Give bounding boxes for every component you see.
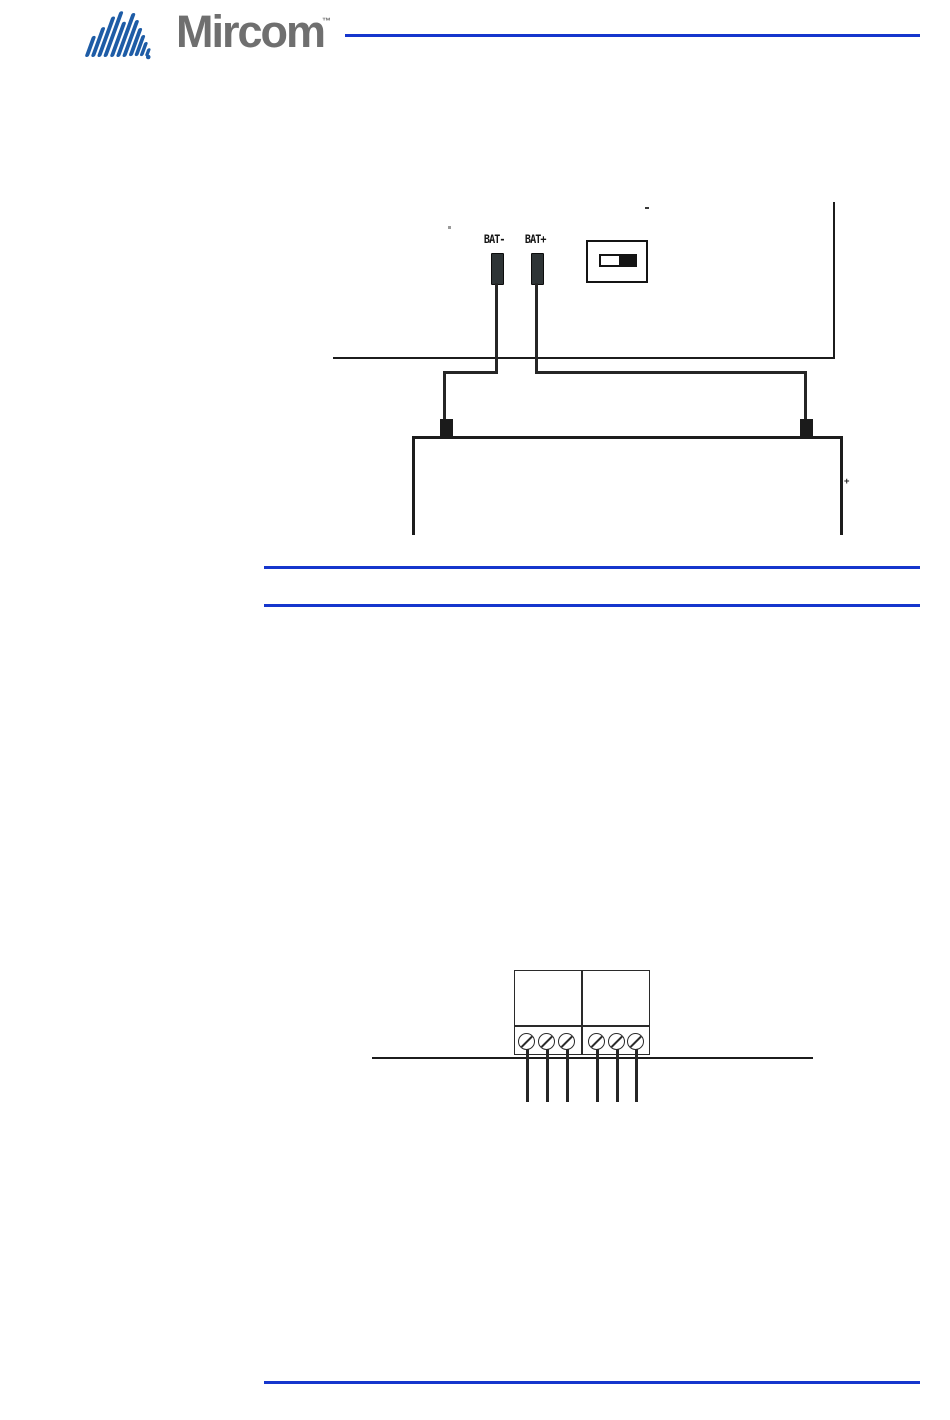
artifact-dot	[448, 226, 451, 229]
screw-terminal-5	[608, 1033, 625, 1050]
bat-plus-wire-run	[535, 371, 807, 374]
mircom-stripes-icon	[84, 7, 172, 63]
note-rule-top	[264, 566, 920, 569]
switch-slot	[599, 254, 637, 267]
screw-terminal-6	[627, 1033, 644, 1050]
bat-plus-terminal	[531, 253, 544, 285]
brand-name: Mircom	[176, 6, 324, 58]
manual-page: Mircom ™ BAT- BAT+ +	[0, 0, 950, 1420]
battery-top-edge	[412, 436, 843, 439]
bat-minus-terminal	[491, 253, 504, 285]
screw-terminal-3	[558, 1033, 575, 1050]
screw-terminal-2	[538, 1033, 555, 1050]
switch-knob	[619, 256, 635, 265]
bat-minus-wire-run	[443, 371, 498, 374]
bat-minus-wire-drop	[495, 283, 498, 374]
screw-terminal-4	[588, 1033, 605, 1050]
bat-plus-label: BAT+	[525, 233, 546, 247]
footer-rule	[264, 1381, 920, 1384]
mounting-surface-line	[372, 1057, 813, 1059]
mircom-logo: Mircom ™	[84, 5, 344, 63]
battery-right-edge	[840, 436, 843, 535]
screw-terminal-1	[518, 1033, 535, 1050]
bat-minus-wire-down	[443, 371, 446, 422]
battery-plus-mark: +	[844, 477, 849, 487]
bat-plus-wire-down	[804, 371, 807, 422]
battery-switch	[586, 240, 648, 283]
battery-left-edge	[412, 436, 415, 535]
terminal-wire-4	[596, 1049, 599, 1102]
terminal-wire-6	[635, 1049, 638, 1102]
bat-plus-wire-drop	[535, 283, 538, 374]
note-rule-bottom	[264, 604, 920, 607]
terminal-wire-5	[616, 1049, 619, 1102]
terminal-block-divider	[581, 971, 583, 1054]
trademark-symbol: ™	[322, 16, 331, 26]
panel-bottom-edge	[333, 357, 835, 359]
terminal-wire-2	[546, 1049, 549, 1102]
artifact-dot	[645, 207, 649, 209]
battery-positive-post	[800, 419, 813, 437]
terminal-wire-1	[526, 1049, 529, 1102]
bat-minus-label: BAT-	[484, 233, 505, 247]
battery-negative-post	[440, 419, 453, 437]
terminal-block-screw-row-divider	[515, 1025, 649, 1027]
panel-right-edge	[833, 202, 835, 359]
terminal-wire-3	[566, 1049, 569, 1102]
header-rule	[345, 34, 920, 37]
